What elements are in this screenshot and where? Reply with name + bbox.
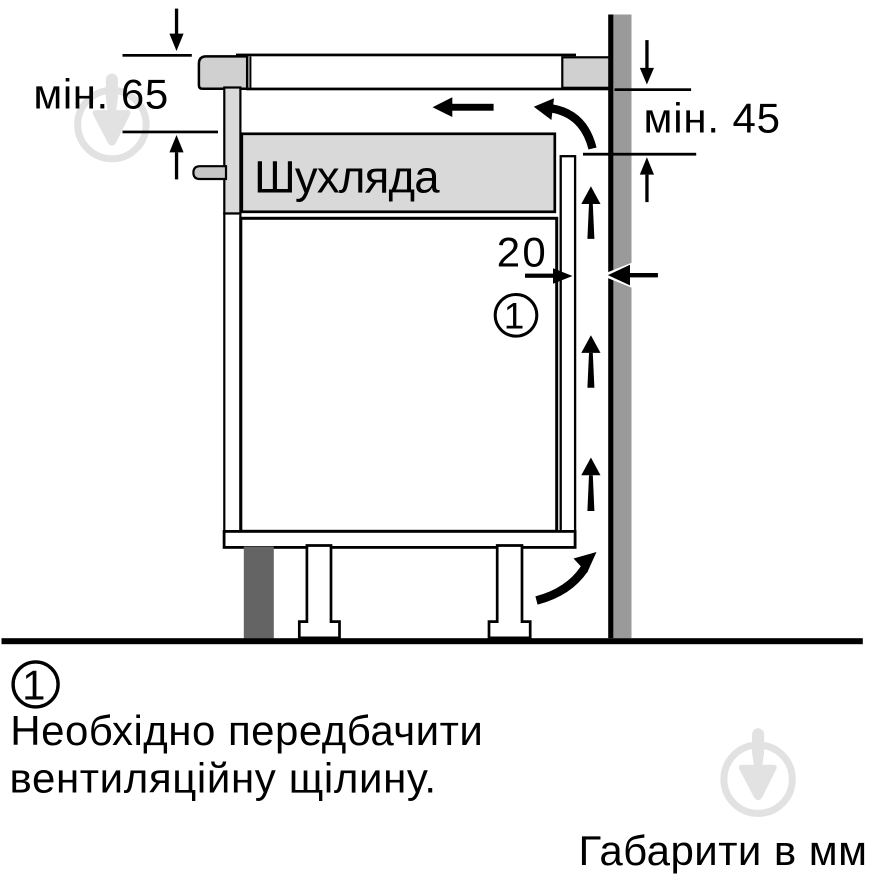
svg-text:Габарити в мм: Габарити в мм <box>579 827 868 874</box>
svg-text:Необхідно передбачити: Необхідно передбачити <box>10 707 483 754</box>
svg-text:Шухляда: Шухляда <box>254 151 440 202</box>
svg-text:1: 1 <box>504 296 525 337</box>
svg-text:1: 1 <box>22 662 45 709</box>
svg-text:вентиляційну щілину.: вентиляційну щілину. <box>10 755 437 802</box>
svg-text:мін. 65: мін. 65 <box>33 71 168 118</box>
svg-text:мін. 45: мін. 45 <box>644 95 781 142</box>
